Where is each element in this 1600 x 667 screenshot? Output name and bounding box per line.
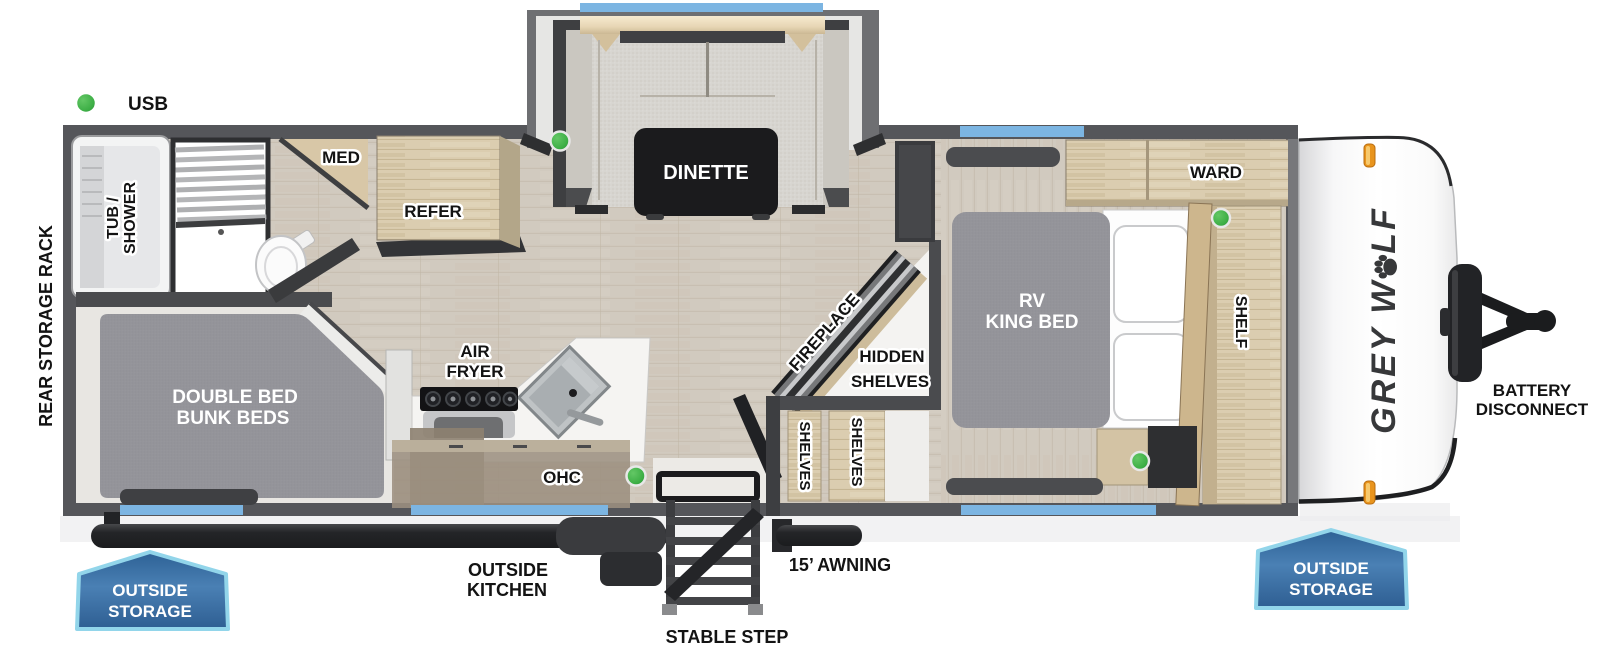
svg-text:TUB /: TUB / <box>105 197 122 239</box>
svg-text:USB: USB <box>128 94 168 115</box>
svg-text:MED: MED <box>322 148 360 167</box>
svg-text:SHELF: SHELF <box>1232 296 1249 349</box>
svg-text:REFER: REFER <box>404 202 462 221</box>
svg-text:OHC: OHC <box>543 468 581 487</box>
svg-text:HIDDEN: HIDDEN <box>859 347 924 366</box>
svg-text:RV: RV <box>1019 291 1045 312</box>
svg-text:SHELVES: SHELVES <box>796 422 813 491</box>
svg-text:DOUBLE BED: DOUBLE BED <box>172 387 298 408</box>
svg-text:BUNK BEDS: BUNK BEDS <box>177 408 290 429</box>
svg-text:WARD: WARD <box>1190 163 1242 182</box>
svg-text:SHOWER: SHOWER <box>122 182 139 254</box>
svg-text:KITCHEN: KITCHEN <box>467 580 547 600</box>
svg-text:OUTSIDE: OUTSIDE <box>1293 559 1369 578</box>
svg-text:STABLE STEP: STABLE STEP <box>666 627 789 647</box>
svg-text:STORAGE: STORAGE <box>1289 580 1373 599</box>
svg-text:SHELVES: SHELVES <box>848 418 865 487</box>
svg-text:DISCONNECT: DISCONNECT <box>1476 400 1589 419</box>
svg-text:AIR: AIR <box>460 342 489 361</box>
svg-text:DINETTE: DINETTE <box>663 162 749 184</box>
svg-text:OUTSIDE: OUTSIDE <box>112 581 188 600</box>
svg-text:FRYER: FRYER <box>447 362 504 381</box>
svg-text:GREY W LF: GREY W LF <box>1365 206 1403 434</box>
svg-text:15’ AWNING: 15’ AWNING <box>789 555 891 575</box>
svg-text:SHELVES: SHELVES <box>851 372 929 391</box>
svg-text:OUTSIDE: OUTSIDE <box>468 560 548 580</box>
svg-text:BATTERY: BATTERY <box>1493 381 1572 400</box>
svg-text:STORAGE: STORAGE <box>108 602 192 621</box>
svg-text:REAR STORAGE RACK: REAR STORAGE RACK <box>36 225 56 427</box>
svg-text:KING BED: KING BED <box>986 312 1079 333</box>
